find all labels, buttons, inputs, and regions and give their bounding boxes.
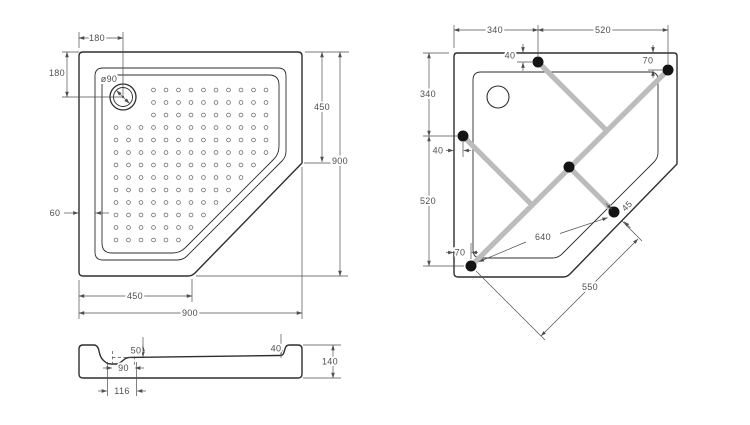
tread-dot [214,163,218,167]
tread-dot [227,188,231,192]
tread-dot [264,113,268,117]
tread-dot [164,188,168,192]
tread-dot [152,213,156,217]
dim-label-recess-width: 116 [114,386,129,396]
tread-dot [177,176,181,180]
tread-dot [264,88,268,92]
tread-dot [127,138,131,142]
tread-dot [177,88,181,92]
dim-label-right-total: 900 [332,156,348,166]
tread-dot [202,88,206,92]
tread-dot [239,113,243,117]
tread-dot [164,226,168,230]
tread-dot [189,163,193,167]
tread-dot [227,88,231,92]
tread-dot [189,226,193,230]
tread-dot [139,138,143,142]
tread-dot [227,163,231,167]
plan-dot-grid [114,88,268,242]
tread-dot [127,126,131,130]
tread-dot [164,101,168,105]
tread-dot [252,88,256,92]
tread-dot [152,176,156,180]
tread-dot [177,151,181,155]
tread-dot [202,163,206,167]
drawing-sheet: 180 180 ø90 450 900 60 450 900 50 40 140… [0,0,750,425]
mounting-foot-top-right [663,65,674,76]
tread-dot [152,126,156,130]
tread-dot [152,88,156,92]
tread-dot [252,138,256,142]
dim-label-span-diag: 550 [582,282,598,292]
tread-dot [239,151,243,155]
tread-dot [164,201,168,205]
tread-dot [189,101,193,105]
tread-dot [114,201,118,205]
dim-label-side-top: 340 [420,89,436,99]
tread-dot [177,163,181,167]
mounting-foot-right [609,207,620,218]
tread-dot [127,188,131,192]
tread-dot [127,176,131,180]
tread-dot [177,201,181,205]
tread-dot [114,126,118,130]
tread-dot [139,126,143,130]
dim-label-depth-left: 50 [131,346,142,356]
tread-dot [177,238,181,242]
tread-dot [139,176,143,180]
section-profile [79,345,302,378]
tread-dot [227,151,231,155]
leader-span-long-b [560,218,608,234]
tread-dot [139,226,143,230]
tread-dot [114,163,118,167]
tread-dot [214,101,218,105]
tread-dot [177,226,181,230]
plan-view: 180 180 ø90 450 900 60 450 900 [49,32,349,319]
tread-dot [227,101,231,105]
tread-dot [139,188,143,192]
mounting-foot-bottom [466,261,477,272]
tread-dot [264,101,268,105]
tread-dot [177,101,181,105]
tread-dot [152,201,156,205]
tread-dot [139,151,143,155]
tread-dot [239,138,243,142]
tread-dot [127,151,131,155]
installation-view: 340 520 40 70 340 40 520 45 640 70 550 [420,25,677,340]
dim-label-bottom-edge: 450 [127,291,143,301]
dim-label-top-left: 340 [487,25,503,35]
drain-label: ø90 [101,74,118,84]
mounting-foot-top [533,57,544,68]
tread-dot [214,201,218,205]
tread-dot [227,176,231,180]
tread-dot [177,213,181,217]
tread-dot [214,176,218,180]
tread-dot [264,138,268,142]
tread-dot [114,176,118,180]
tread-dot [189,151,193,155]
tread-dot [202,101,206,105]
tread-dot [189,201,193,205]
tread-dot [252,101,256,105]
dim-label-rim-width: 60 [50,208,61,218]
dim-label-step-right: 40 [271,344,282,354]
tread-dot [239,126,243,130]
dim-label-foot-topright: 70 [643,56,654,66]
tread-dot [189,126,193,130]
tread-dot [202,113,206,117]
tread-dot [114,213,118,217]
tread-dot [227,113,231,117]
tread-dot [164,138,168,142]
tread-dot [127,163,131,167]
support-bar-right [569,167,614,212]
tread-dot [252,113,256,117]
tread-dot [239,101,243,105]
tread-dot [214,113,218,117]
tread-dot [139,238,143,242]
dim-label-top-right: 520 [595,25,611,35]
tread-dot [202,151,206,155]
tread-dot [252,151,256,155]
tread-dot [227,138,231,142]
tread-dot [264,126,268,130]
tread-dot [177,113,181,117]
tread-dot [177,138,181,142]
tread-dot [114,238,118,242]
mounting-foot-left [458,131,469,142]
tread-dot [127,226,131,230]
drain-center-mark [122,96,124,98]
tread-dot [164,238,168,242]
tread-dot [189,213,193,217]
dim-label-span-long: 640 [535,232,551,242]
dim-label-drain-width: 90 [118,363,129,373]
tread-dot [227,126,231,130]
tread-dot [214,88,218,92]
section-view: 50 40 140 90 116 [79,334,341,396]
tread-dot [152,163,156,167]
extension-lines [108,334,342,396]
tread-dot [164,176,168,180]
tread-dot [152,138,156,142]
dim-label-side-bottom: 520 [420,196,436,206]
tread-dot [202,201,206,205]
tread-dot [202,188,206,192]
tread-dot [139,163,143,167]
dim-label-height: 140 [322,357,338,367]
tread-dot [127,238,131,242]
tread-dot [164,126,168,130]
tread-dot [152,238,156,242]
tread-dot [177,126,181,130]
tread-dot [114,151,118,155]
tread-dot [239,163,243,167]
dim-label-top-offset: 180 [89,33,105,43]
tread-dot [164,88,168,92]
tread-dot [152,113,156,117]
tread-dot [214,188,218,192]
dim-label-foot-bottom: 70 [455,248,466,258]
tread-dot [152,226,156,230]
tread-dot [177,188,181,192]
tread-dot [202,138,206,142]
technical-drawing: 180 180 ø90 450 900 60 450 900 50 40 140… [0,0,750,425]
tread-dot [202,213,206,217]
tread-dot [202,126,206,130]
tread-dot [189,88,193,92]
dim-arrow-foot-right-b [624,222,630,228]
tread-dot [252,163,256,167]
tread-dot [214,138,218,142]
tread-dot [127,201,131,205]
tread-dot [189,113,193,117]
dim-label-foot-left: 40 [433,146,444,156]
dim-label-foot-top: 40 [505,51,516,61]
tread-dot [152,101,156,105]
tread-dot [252,126,256,130]
dim-label-right-edge: 450 [314,102,330,112]
tread-dot [164,213,168,217]
tread-dot [264,151,268,155]
dim-label-left-offset: 180 [49,68,65,78]
tread-dot [214,126,218,130]
tread-dot [114,226,118,230]
dim-label-bottom-total: 900 [182,308,198,318]
tread-dot [202,176,206,180]
tread-dot [152,188,156,192]
tread-dot [139,213,143,217]
tread-dot [114,188,118,192]
drain-circle [487,86,509,108]
tread-dot [189,188,193,192]
tread-dot [139,201,143,205]
mounting-foot-center [564,162,575,173]
tread-dot [164,113,168,117]
tread-dot [189,176,193,180]
tread-dot [164,163,168,167]
tread-dot [152,151,156,155]
tread-dot [114,138,118,142]
tread-dot [239,176,243,180]
tread-dot [239,88,243,92]
tread-dot [164,151,168,155]
tread-dot [214,151,218,155]
tread-dot [127,213,131,217]
tread-dot [189,138,193,142]
